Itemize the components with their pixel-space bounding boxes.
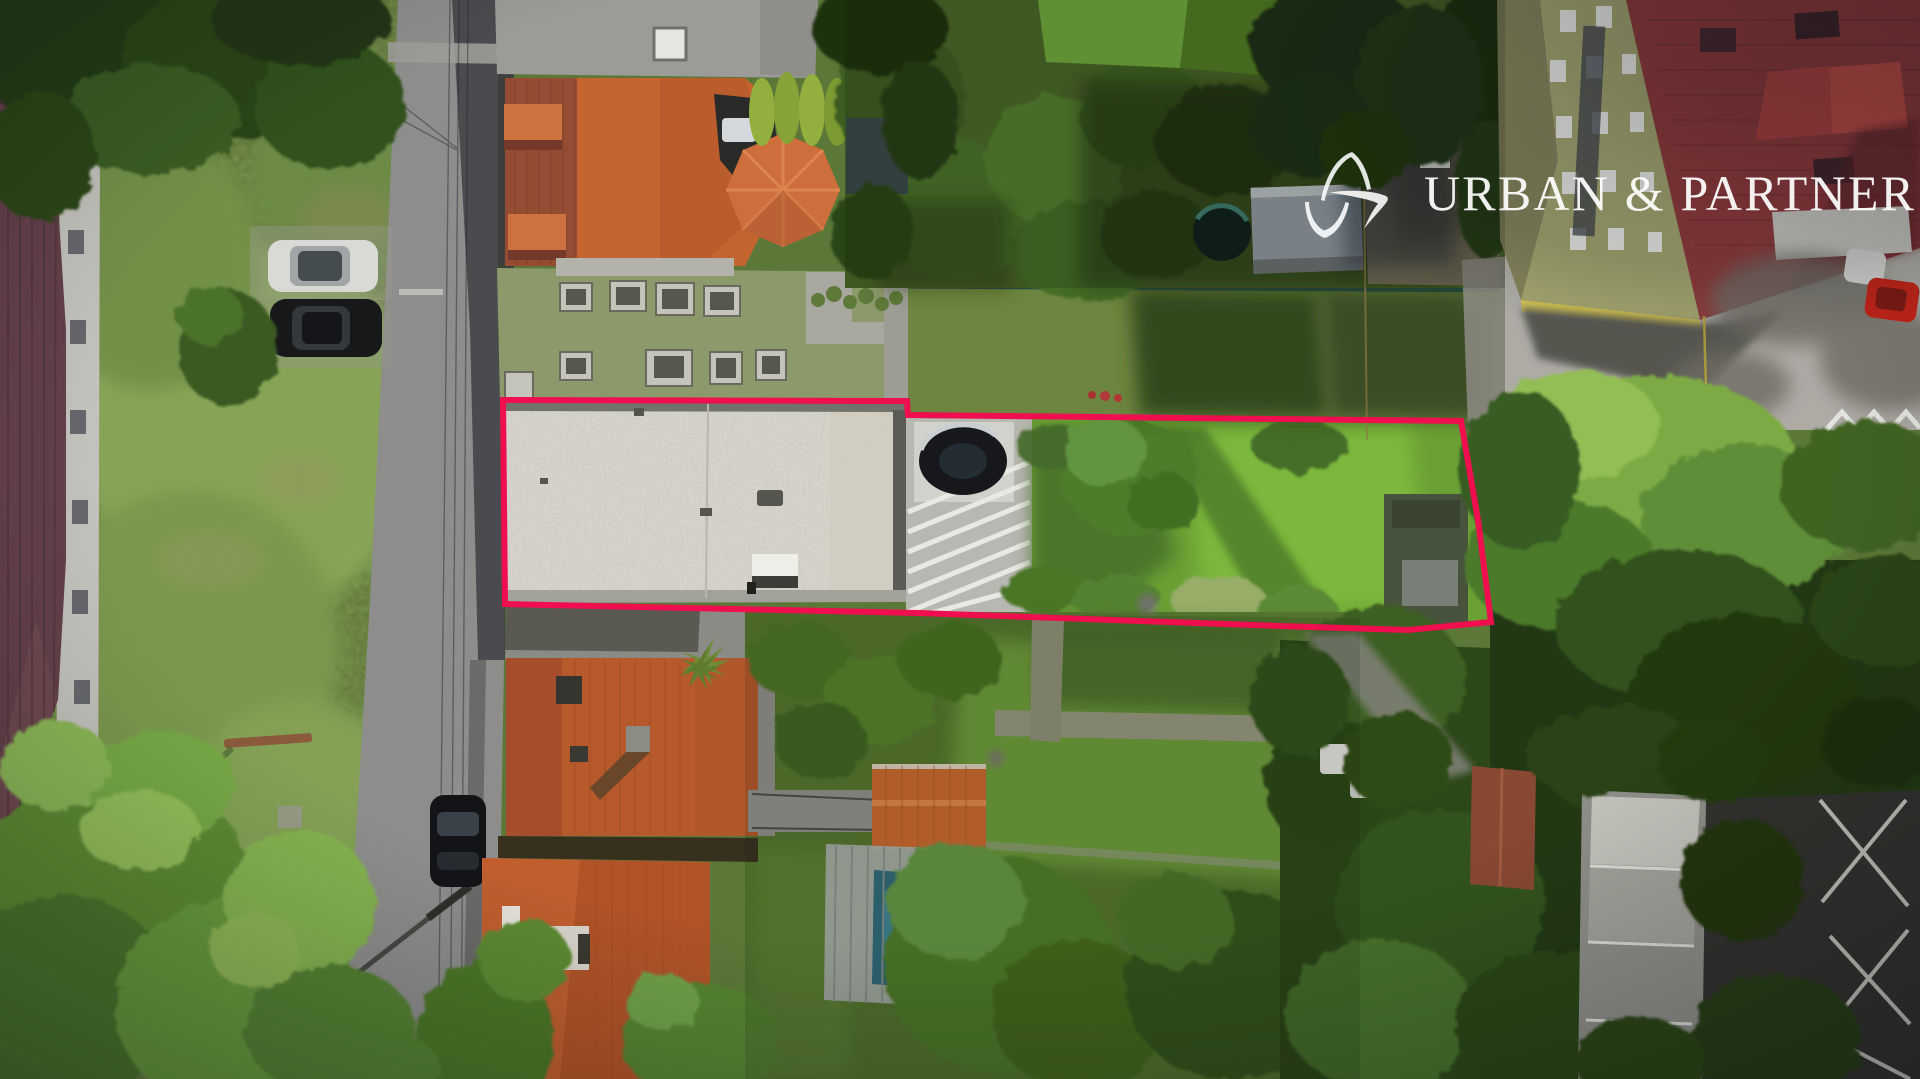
svg-text:URBAN & PARTNER: URBAN & PARTNER	[1424, 165, 1916, 221]
